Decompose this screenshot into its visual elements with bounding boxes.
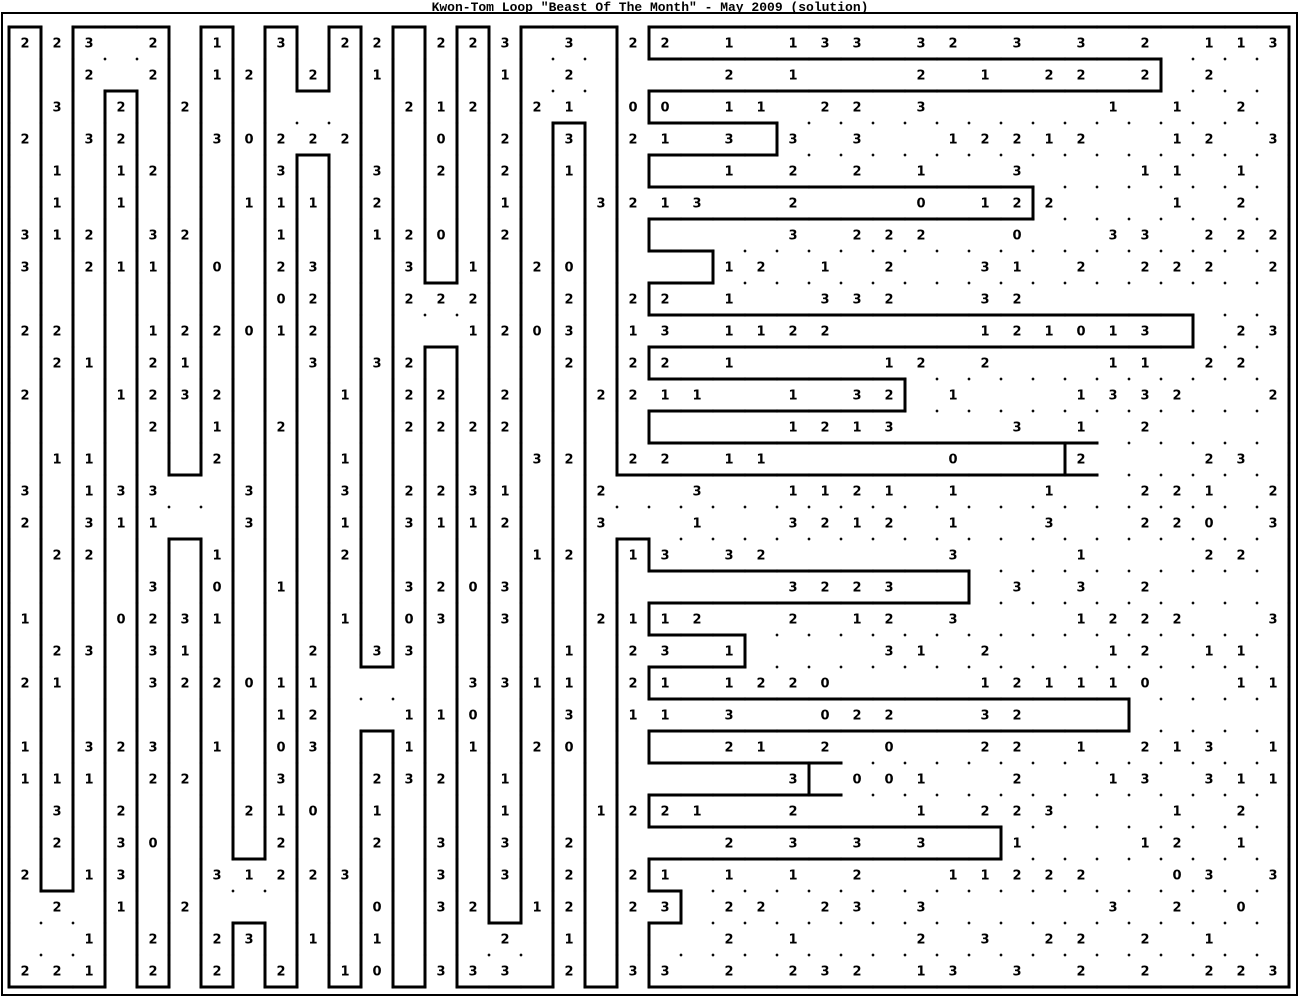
clue-number: 2 [820,101,829,116]
clue-number: 2 [340,133,349,148]
clue-number: 3 [1268,965,1277,980]
clue-number: 1 [84,933,93,948]
clue-number: 2 [628,133,637,148]
clue-number: 2 [148,165,157,180]
clue-number: 3 [276,37,285,52]
clue-number: 0 [436,229,445,244]
clue-number: 3 [1204,773,1213,788]
clue-number: 1 [724,677,733,692]
clue-number: 1 [564,101,573,116]
clue-number: 1 [628,613,637,628]
clue-number: 2 [436,293,445,308]
clue-number: 3 [948,549,957,564]
clue-number: 1 [660,133,669,148]
clue-number: 2 [596,389,605,404]
clue-number: 3 [308,261,317,276]
clue-number: 2 [20,325,29,340]
clue-number: 2 [308,133,317,148]
clue-number: 2 [724,965,733,980]
clue-number: 1 [212,69,221,84]
clue-number: 2 [1140,421,1149,436]
clue-number: 1 [500,197,509,212]
clue-number: 2 [564,837,573,852]
clue-number: 1 [84,773,93,788]
clue-number: 3 [372,165,381,180]
clue-number: 0 [820,677,829,692]
clue-number: 1 [148,325,157,340]
clue-number: 2 [308,325,317,340]
clue-number: 1 [276,677,285,692]
clue-number: 1 [244,869,253,884]
clue-number: 2 [1076,133,1085,148]
clue-number: 2 [628,197,637,212]
clue-number: 2 [436,773,445,788]
clue-number: 2 [1204,261,1213,276]
clue-number: 2 [1172,613,1181,628]
clue-number: 2 [1204,133,1213,148]
clue-number: 2 [980,645,989,660]
clue-number: 3 [148,485,157,500]
clue-number: 2 [884,389,893,404]
clue-number: 3 [340,485,349,500]
clue-number: 2 [820,421,829,436]
clue-number: 2 [148,357,157,372]
clue-number: 3 [1268,869,1277,884]
clue-number: 1 [468,517,477,532]
clue-number: 2 [1204,229,1213,244]
clue-number: 3 [148,229,157,244]
clue-number: 2 [52,901,61,916]
clue-number: 3 [1268,133,1277,148]
clue-number: 1 [1140,837,1149,852]
clue-number: 1 [500,805,509,820]
clue-number: 3 [404,645,413,660]
clue-number: 2 [1076,261,1085,276]
clue-number: 1 [340,613,349,628]
clue-number: 1 [916,773,925,788]
clue-number: 2 [788,325,797,340]
clue-number: 2 [820,741,829,756]
clue-number: 1 [692,517,701,532]
clue-number: 2 [628,677,637,692]
clue-number: 1 [1172,197,1181,212]
clue-number: 1 [884,357,893,372]
clue-number: 2 [724,901,733,916]
clue-number: 2 [852,101,861,116]
clue-number: 2 [404,293,413,308]
clue-number: 1 [436,709,445,724]
clue-number: 2 [788,613,797,628]
clue-number: 2 [20,965,29,980]
clue-number: 1 [1044,485,1053,500]
clue-number: 2 [20,133,29,148]
clue-number: 1 [1236,37,1245,52]
clue-number: 2 [404,229,413,244]
clue-number: 2 [148,965,157,980]
clue-number: 3 [436,901,445,916]
clue-number: 2 [180,101,189,116]
clue-number: 1 [980,69,989,84]
clue-number: 2 [308,709,317,724]
clue-number: 2 [52,965,61,980]
clue-number: 2 [212,965,221,980]
clue-number: 2 [980,357,989,372]
clue-number: 2 [1268,485,1277,500]
clue-number: 2 [724,69,733,84]
clue-number: 3 [564,133,573,148]
clue-number: 1 [660,709,669,724]
clue-number: 2 [1076,69,1085,84]
clue-number: 2 [628,453,637,468]
clue-number: 1 [84,485,93,500]
clue-number: 3 [1012,165,1021,180]
clue-number: 2 [1076,453,1085,468]
clue-number: 1 [788,69,797,84]
clue-number: 3 [1268,325,1277,340]
clue-number: 1 [1204,933,1213,948]
clue-number: 2 [436,165,445,180]
clue-number: 2 [884,613,893,628]
clue-number: 1 [308,677,317,692]
clue-number: 2 [756,901,765,916]
clue-number: 2 [1140,741,1149,756]
clue-number: 3 [1268,613,1277,628]
clue-number: 2 [116,805,125,820]
clue-number: 2 [1172,517,1181,532]
clue-number: 1 [948,517,957,532]
clue-number: 2 [52,325,61,340]
clue-number: 1 [948,485,957,500]
clue-number: 2 [52,549,61,564]
clue-number: 1 [148,261,157,276]
clue-number: 2 [1236,101,1245,116]
clue-number: 1 [692,389,701,404]
clue-number: 1 [340,389,349,404]
clue-number: 1 [1108,645,1117,660]
clue-number: 1 [84,453,93,468]
clue-number: 2 [372,197,381,212]
clue-number: 3 [468,485,477,500]
clue-number: 2 [980,805,989,820]
clue-number: 1 [1204,37,1213,52]
clue-number: 2 [148,421,157,436]
clue-number: 2 [52,645,61,660]
clue-number: 2 [1076,965,1085,980]
clue-number: 3 [116,869,125,884]
clue-number: 3 [276,165,285,180]
clue-number: 2 [180,773,189,788]
clue-number: 1 [596,805,605,820]
clue-number: 3 [596,197,605,212]
clue-number: 2 [468,901,477,916]
clue-number: 0 [372,965,381,980]
clue-number: 1 [84,869,93,884]
clue-number: 1 [724,101,733,116]
clue-number: 3 [500,37,509,52]
clue-number: 1 [1236,773,1245,788]
clue-number: 1 [468,741,477,756]
clue-number: 0 [564,741,573,756]
clue-number: 2 [628,37,637,52]
clue-number: 1 [212,613,221,628]
clue-number: 1 [276,325,285,340]
clue-number: 1 [1044,677,1053,692]
clue-number: 2 [372,837,381,852]
clue-number: 2 [212,389,221,404]
clue-number: 1 [340,453,349,468]
clue-number: 3 [244,933,253,948]
clue-number: 2 [500,933,509,948]
clue-number: 1 [52,229,61,244]
clue-number: 3 [564,37,573,52]
clue-number: 0 [1012,229,1021,244]
clue-number: 3 [852,133,861,148]
clue-number: 2 [820,325,829,340]
clue-number: 1 [948,389,957,404]
clue-number: 1 [1108,773,1117,788]
clue-number: 1 [1076,549,1085,564]
clue-number: 1 [724,357,733,372]
clue-number: 2 [820,581,829,596]
clue-number: 1 [916,645,925,660]
clue-number: 1 [1012,261,1021,276]
clue-number: 2 [1012,293,1021,308]
clue-number: 1 [980,677,989,692]
clue-number: 3 [404,517,413,532]
clue-number: 3 [980,933,989,948]
clue-number: 3 [1108,229,1117,244]
clue-number: 3 [244,485,253,500]
clue-number: 2 [372,37,381,52]
clue-number: 2 [1140,581,1149,596]
clue-number: 3 [468,677,477,692]
clue-number: 3 [820,37,829,52]
clue-number: 1 [1236,165,1245,180]
clue-number: 2 [1140,517,1149,532]
clue-number: 0 [1204,517,1213,532]
clue-number: 1 [916,165,925,180]
clue-number: 1 [788,389,797,404]
clue-number: 1 [628,709,637,724]
clue-number: 2 [564,453,573,468]
clue-number: 1 [980,869,989,884]
clue-number: 2 [276,261,285,276]
clue-number: 1 [340,965,349,980]
clue-number: 1 [884,485,893,500]
clue-number: 1 [84,965,93,980]
clue-number: 1 [980,197,989,212]
clue-number: 2 [980,741,989,756]
clue-number: 2 [468,293,477,308]
clue-number: 1 [500,485,509,500]
clue-number: 2 [756,261,765,276]
clue-number: 3 [1140,229,1149,244]
clue-number: 3 [1140,773,1149,788]
clue-number: 3 [980,709,989,724]
clue-number: 2 [1236,965,1245,980]
clue-number: 2 [532,741,541,756]
clue-number: 0 [436,133,445,148]
clue-number: 3 [916,837,925,852]
clue-number: 1 [1268,773,1277,788]
clue-number: 2 [1044,69,1053,84]
clue-number: 2 [180,677,189,692]
clue-number: 1 [116,197,125,212]
clue-number: 1 [52,773,61,788]
clue-number: 0 [852,773,861,788]
clue-number: 3 [788,517,797,532]
clue-number: 1 [1140,357,1149,372]
clue-number: 3 [660,965,669,980]
clue-number: 2 [52,37,61,52]
clue-number: 2 [1172,837,1181,852]
clue-number: 2 [788,965,797,980]
clue-number: 0 [244,133,253,148]
clue-number: 3 [724,549,733,564]
clue-number: 3 [1108,901,1117,916]
clue-number: 1 [1108,677,1117,692]
clue-number: 0 [660,101,669,116]
clue-number: 2 [500,517,509,532]
clue-number: 2 [148,389,157,404]
clue-number: 1 [1268,677,1277,692]
clue-number: 2 [1140,613,1149,628]
clue-number: 3 [20,485,29,500]
clue-number: 2 [276,421,285,436]
clue-number: 1 [468,325,477,340]
clue-number: 3 [84,645,93,660]
clue-number: 3 [404,581,413,596]
clue-number: 3 [1012,581,1021,596]
clue-number: 1 [52,165,61,180]
clue-number: 1 [276,805,285,820]
clue-number: 2 [788,805,797,820]
clue-number: 3 [916,901,925,916]
clue-number: 2 [660,453,669,468]
clue-number: 2 [436,485,445,500]
clue-number: 3 [468,965,477,980]
clue-number: 1 [308,197,317,212]
clue-number: 3 [500,581,509,596]
clue-number: 1 [820,485,829,500]
clue-number: 2 [1140,261,1149,276]
clue-number: 2 [916,229,925,244]
clue-number: 2 [852,965,861,980]
clue-number: 2 [1204,357,1213,372]
clue-number: 2 [1172,485,1181,500]
clue-number: 3 [372,645,381,660]
clue-number: 2 [532,101,541,116]
clue-number: 1 [564,165,573,180]
clue-number: 3 [372,357,381,372]
clue-number: 1 [148,517,157,532]
clue-number: 3 [1236,453,1245,468]
clue-number: 0 [116,613,125,628]
clue-number: 1 [756,453,765,468]
clue-number: 0 [404,613,413,628]
clue-number: 3 [948,965,957,980]
clue-number: 3 [1108,389,1117,404]
clue-number: 0 [1236,901,1245,916]
clue-number: 2 [180,325,189,340]
clue-number: 3 [500,965,509,980]
clue-number: 1 [948,869,957,884]
clue-number: 1 [372,805,381,820]
clue-number: 3 [1204,741,1213,756]
clue-number: 0 [1140,677,1149,692]
clue-number: 1 [1172,805,1181,820]
clue-number: 0 [628,101,637,116]
clue-number: 1 [1204,485,1213,500]
clue-number: 0 [468,581,477,596]
clue-number: 2 [1044,933,1053,948]
clue-number: 3 [500,613,509,628]
clue-number: 3 [948,613,957,628]
clue-number: 1 [724,869,733,884]
clue-number: 2 [1236,229,1245,244]
clue-number: 0 [308,805,317,820]
clue-number: 1 [660,613,669,628]
clue-number: 3 [500,837,509,852]
clue-number: 1 [1172,133,1181,148]
clue-number: 2 [1012,869,1021,884]
clue-number: 3 [148,741,157,756]
clue-number: 3 [244,517,253,532]
clue-number: 2 [1140,645,1149,660]
clue-number: 1 [724,645,733,660]
clue-number: 3 [20,261,29,276]
clue-number: 3 [1140,389,1149,404]
clue-number: 1 [1268,741,1277,756]
clue-number: 2 [1140,485,1149,500]
clue-number: 2 [372,773,381,788]
clue-number: 2 [84,261,93,276]
clue-number: 3 [660,901,669,916]
clue-number: 2 [212,325,221,340]
clue-number: 3 [276,773,285,788]
clue-number: 2 [852,485,861,500]
clue-number: 1 [1140,165,1149,180]
clue-number: 2 [436,37,445,52]
clue-number: 2 [916,69,925,84]
clue-number: 2 [1108,613,1117,628]
clue-number: 1 [1076,389,1085,404]
clue-number: 2 [1012,805,1021,820]
clue-number: 3 [116,485,125,500]
clue-number: 2 [180,229,189,244]
clue-number: 1 [1012,837,1021,852]
clue-number: 2 [468,421,477,436]
clue-number: 2 [180,901,189,916]
clue-number: 3 [660,325,669,340]
clue-number: 3 [436,613,445,628]
clue-number: 1 [788,421,797,436]
clue-number: 2 [404,101,413,116]
clue-number: 0 [884,741,893,756]
clue-number: 1 [500,69,509,84]
clue-number: 2 [84,69,93,84]
clue-number: 2 [564,357,573,372]
clue-number: 3 [116,837,125,852]
clue-number: 2 [500,389,509,404]
clue-number: 1 [500,773,509,788]
clue-number: 3 [884,421,893,436]
clue-number: 3 [788,581,797,596]
clue-number: 2 [1076,933,1085,948]
clue-number: 2 [724,837,733,852]
clue-number: 1 [724,165,733,180]
clue-number: 1 [52,197,61,212]
